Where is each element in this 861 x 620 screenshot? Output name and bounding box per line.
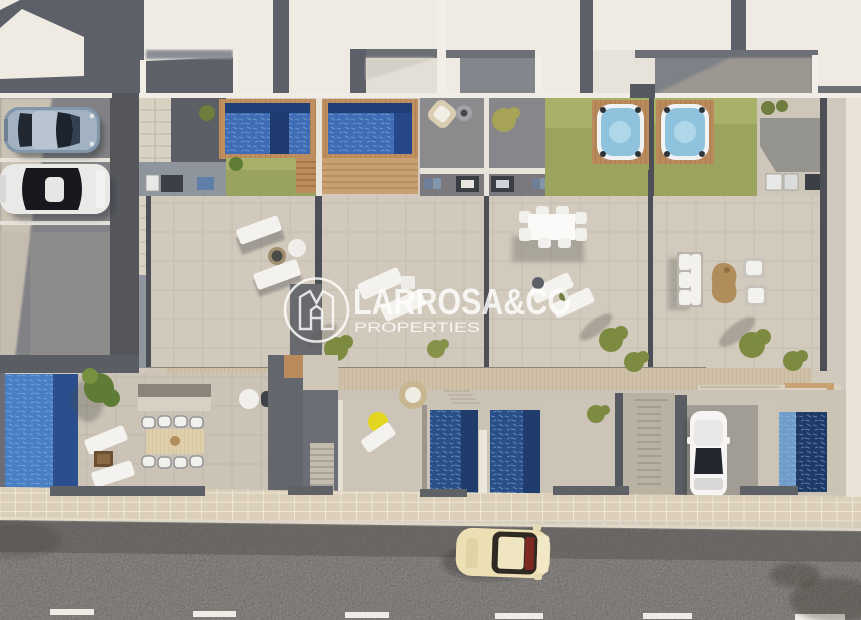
svg-text:PROPERTIES: PROPERTIES — [354, 320, 480, 335]
svg-text:LARROSA&CO: LARROSA&CO — [353, 281, 571, 322]
